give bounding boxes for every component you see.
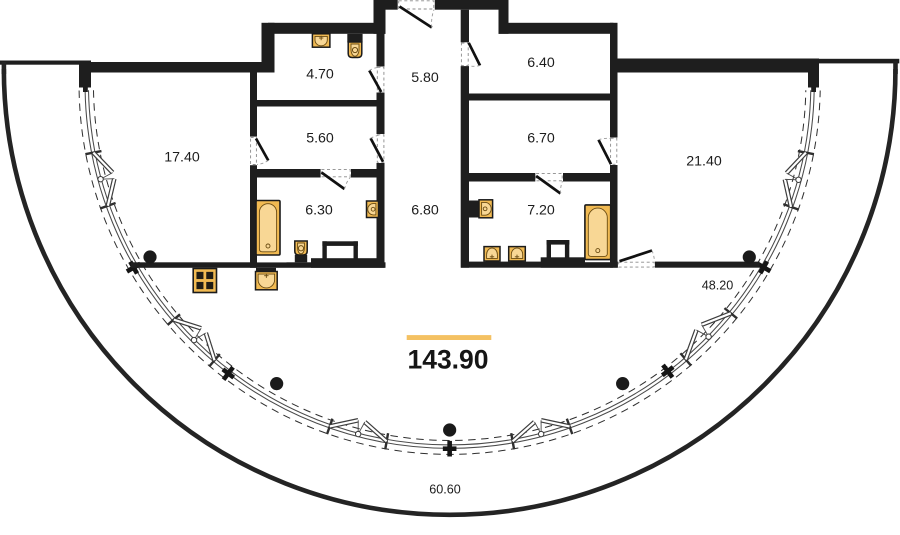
svg-text:4.70: 4.70 (306, 67, 334, 83)
svg-text:6.70: 6.70 (527, 130, 555, 146)
svg-text:7.20: 7.20 (527, 202, 555, 218)
svg-text:6.80: 6.80 (411, 202, 439, 218)
svg-text:21.40: 21.40 (686, 153, 722, 169)
svg-text:48.20: 48.20 (702, 279, 734, 293)
svg-text:60.60: 60.60 (429, 483, 461, 497)
svg-text:5.60: 5.60 (306, 130, 334, 146)
svg-text:5.80: 5.80 (411, 70, 439, 86)
svg-text:6.30: 6.30 (305, 202, 333, 218)
svg-text:17.40: 17.40 (164, 149, 200, 165)
svg-text:6.40: 6.40 (527, 55, 555, 71)
svg-text:143.90: 143.90 (407, 345, 488, 375)
